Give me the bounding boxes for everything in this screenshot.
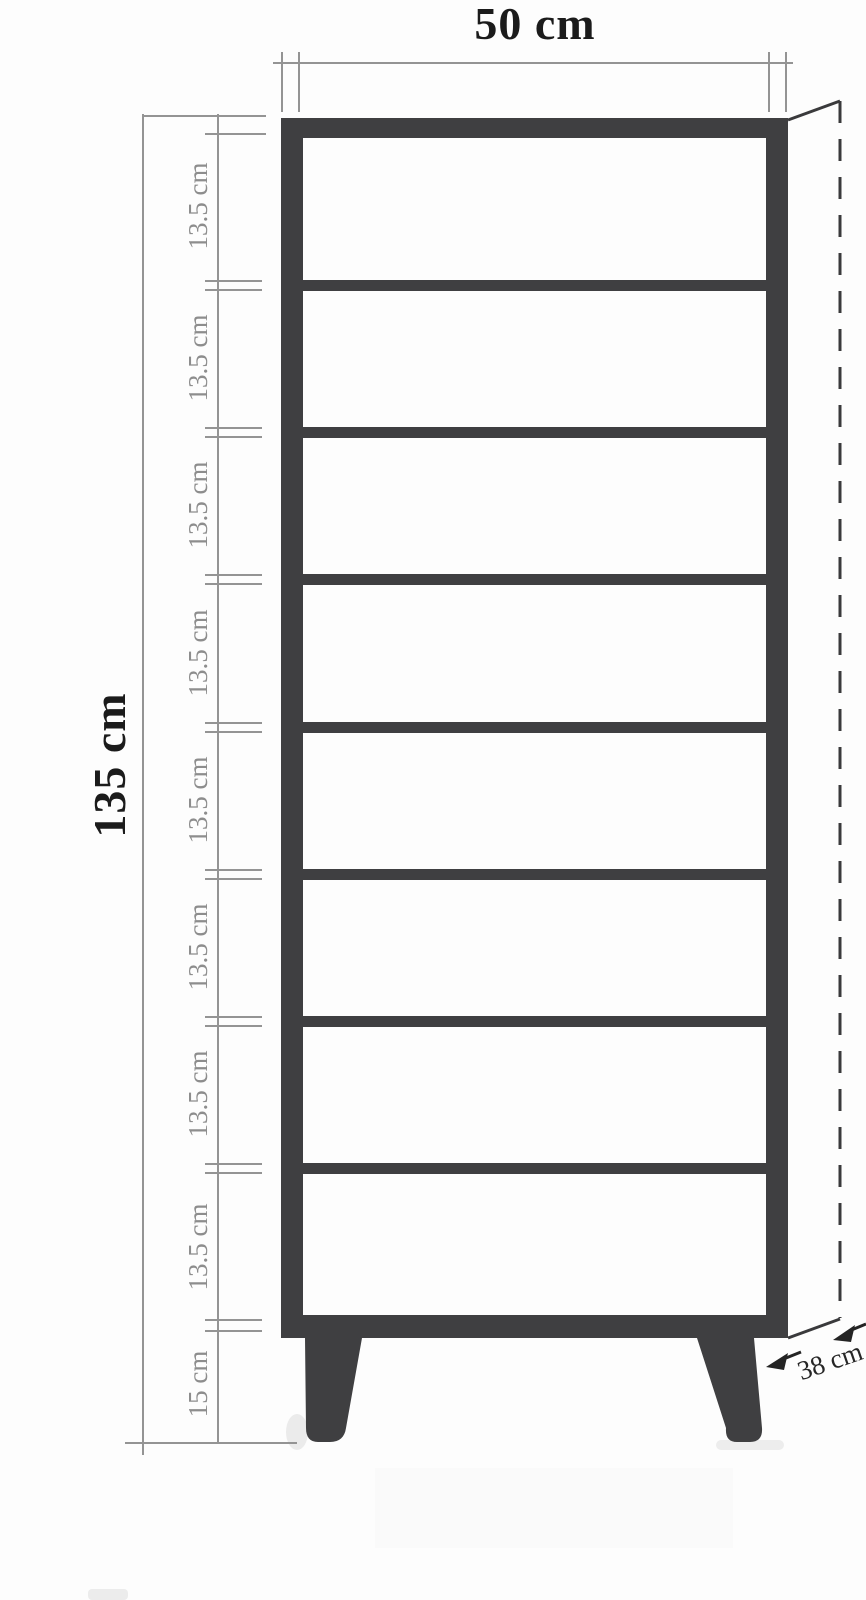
shelf-7 (303, 1163, 766, 1174)
shelf-2 (303, 427, 766, 438)
segment-tick-3 (205, 575, 262, 584)
segment-label-5: 13.5 cm (183, 730, 213, 870)
shelf-6 (303, 1016, 766, 1027)
segment-label-6: 13.5 cm (183, 877, 213, 1017)
segment-label-8: 13.5 cm (183, 1177, 213, 1317)
segment-label-2: 13.5 cm (183, 288, 213, 428)
shelf-5 (303, 869, 766, 880)
furniture-dimension-diagram: 50 cm 135 cm 13.5 cm 13.5 cm 13.5 cm 13.… (0, 0, 866, 1600)
floor-shadow (375, 1468, 733, 1548)
depth-perspective (788, 101, 840, 1338)
dimension-lines (125, 52, 793, 1455)
cabinet-bottom-panel (281, 1315, 788, 1338)
leg-height-label: 15 cm (183, 1314, 213, 1454)
right-leg (697, 1338, 762, 1442)
scan-smudge (88, 1589, 128, 1600)
cabinet-left-panel (281, 138, 303, 1315)
left-leg-shadow (286, 1414, 308, 1450)
segment-label-3: 13.5 cm (183, 435, 213, 575)
cabinet-right-panel (766, 138, 788, 1315)
segment-tick-5 (205, 870, 262, 879)
segment-tick-6 (205, 1017, 262, 1026)
shelf-3 (303, 574, 766, 585)
shelf-4 (303, 722, 766, 733)
left-leg (305, 1338, 362, 1442)
depth-edge-top (788, 101, 840, 120)
cabinet-top-panel (281, 118, 788, 138)
shelf-1 (303, 280, 766, 291)
width-dimension-label: 50 cm (405, 0, 665, 50)
cabinet (281, 118, 788, 1442)
segment-label-7: 13.5 cm (183, 1024, 213, 1164)
segment-tick-7 (205, 1164, 262, 1173)
segment-tick-1 (205, 281, 262, 290)
height-dimension-label: 135 cm (84, 655, 136, 875)
depth-edge-bottom (788, 1319, 840, 1338)
segment-label-4: 13.5 cm (183, 583, 213, 723)
segment-tick-2 (205, 428, 262, 437)
segment-tick-8 (205, 1320, 262, 1331)
segment-tick-4 (205, 723, 262, 732)
segment-label-1: 13.5 cm (183, 136, 213, 276)
